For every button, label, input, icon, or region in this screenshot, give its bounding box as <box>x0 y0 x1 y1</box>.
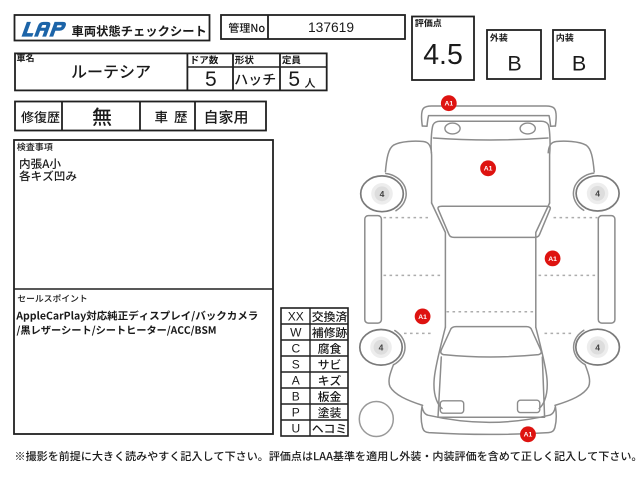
svg-text:5: 5 <box>288 68 300 91</box>
svg-text:B: B <box>292 389 300 403</box>
svg-text:P: P <box>292 405 300 419</box>
svg-text:U: U <box>291 421 300 435</box>
svg-text:137619: 137619 <box>308 20 354 35</box>
svg-text:4.5: 4.5 <box>423 39 463 71</box>
svg-text:C: C <box>291 341 300 355</box>
svg-text:4: 4 <box>595 189 600 199</box>
svg-text:5: 5 <box>205 68 217 91</box>
svg-text:A1: A1 <box>484 166 493 173</box>
svg-text:A1: A1 <box>444 101 453 108</box>
svg-text:4: 4 <box>379 343 384 353</box>
svg-text:B: B <box>572 52 586 76</box>
svg-text:A: A <box>292 373 300 387</box>
svg-text:A1: A1 <box>548 256 557 263</box>
svg-text:B: B <box>507 52 521 76</box>
svg-text:XX: XX <box>288 309 304 323</box>
svg-text:S: S <box>292 357 300 371</box>
svg-text:A1: A1 <box>418 314 427 321</box>
svg-text:A1: A1 <box>524 432 533 439</box>
svg-text:4: 4 <box>595 342 600 352</box>
svg-text:W: W <box>290 325 302 339</box>
svg-text:4: 4 <box>380 189 385 199</box>
